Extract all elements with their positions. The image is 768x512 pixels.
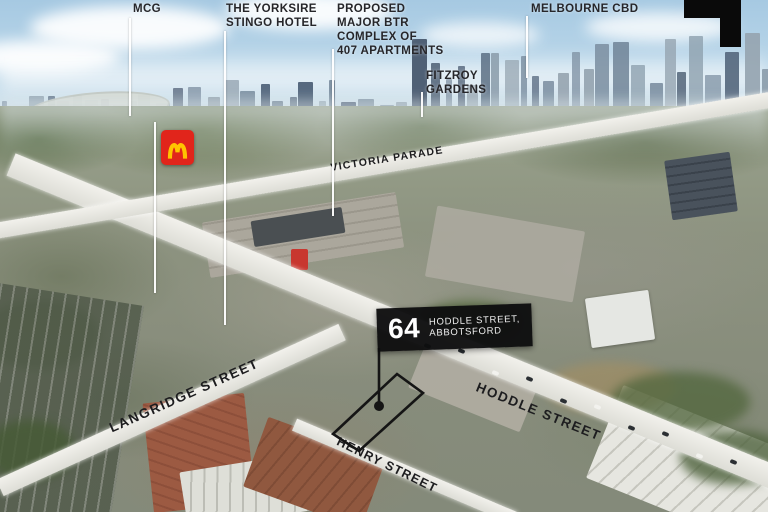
property-address: HODDLE STREET, ABBOTSFORD xyxy=(429,313,521,339)
callout-text: MELBOURNE CBD xyxy=(531,2,638,16)
leader-line-hotel xyxy=(224,31,226,325)
callout-text: 407 APARTMENTS xyxy=(337,44,444,58)
leader-line-cbd xyxy=(526,16,528,78)
callout-text: GARDENS xyxy=(426,83,486,97)
callout-text: THE YORKSIRE xyxy=(226,2,317,16)
callout-melbourne-cbd: MELBOURNE CBD xyxy=(531,2,638,16)
address-suburb: ABBOTSFORD xyxy=(429,325,502,339)
leader-line-mcg xyxy=(129,18,131,116)
golden-arches-icon xyxy=(164,134,191,161)
leader-line-btr xyxy=(332,49,334,216)
property-number: 64 xyxy=(387,312,420,345)
leader-line-fitzroy xyxy=(421,92,423,117)
callout-mcg: MCG xyxy=(133,2,161,16)
callout-text: PROPOSED xyxy=(337,2,444,16)
callout-fitzroy-gardens: FITZROY GARDENS xyxy=(426,69,486,97)
white-building xyxy=(585,290,655,348)
callout-btr-complex: PROPOSED MAJOR BTR COMPLEX OF 407 APARTM… xyxy=(337,2,444,58)
haze xyxy=(0,100,768,160)
property-badge: 64 HODDLE STREET, ABBOTSFORD xyxy=(376,303,533,351)
aerial-photo: VICTORIA PARADE LANGRIDGE STREET HODDLE … xyxy=(0,0,768,512)
apartment-building xyxy=(664,152,738,221)
callout-text: STINGO HOTEL xyxy=(226,16,317,30)
callout-yorksire-stingo-hotel: THE YORKSIRE STINGO HOTEL xyxy=(226,2,317,30)
callout-text: FITZROY xyxy=(426,69,486,83)
mcdonalds-icon xyxy=(161,130,194,165)
address-street: HODDLE STREET, xyxy=(429,313,520,327)
callout-text: MCG xyxy=(133,2,161,16)
corner-logo-icon xyxy=(720,0,741,47)
leader-line-mcdonalds xyxy=(154,122,156,293)
callout-text: MAJOR BTR xyxy=(337,16,444,30)
callout-text: COMPLEX OF xyxy=(337,30,444,44)
